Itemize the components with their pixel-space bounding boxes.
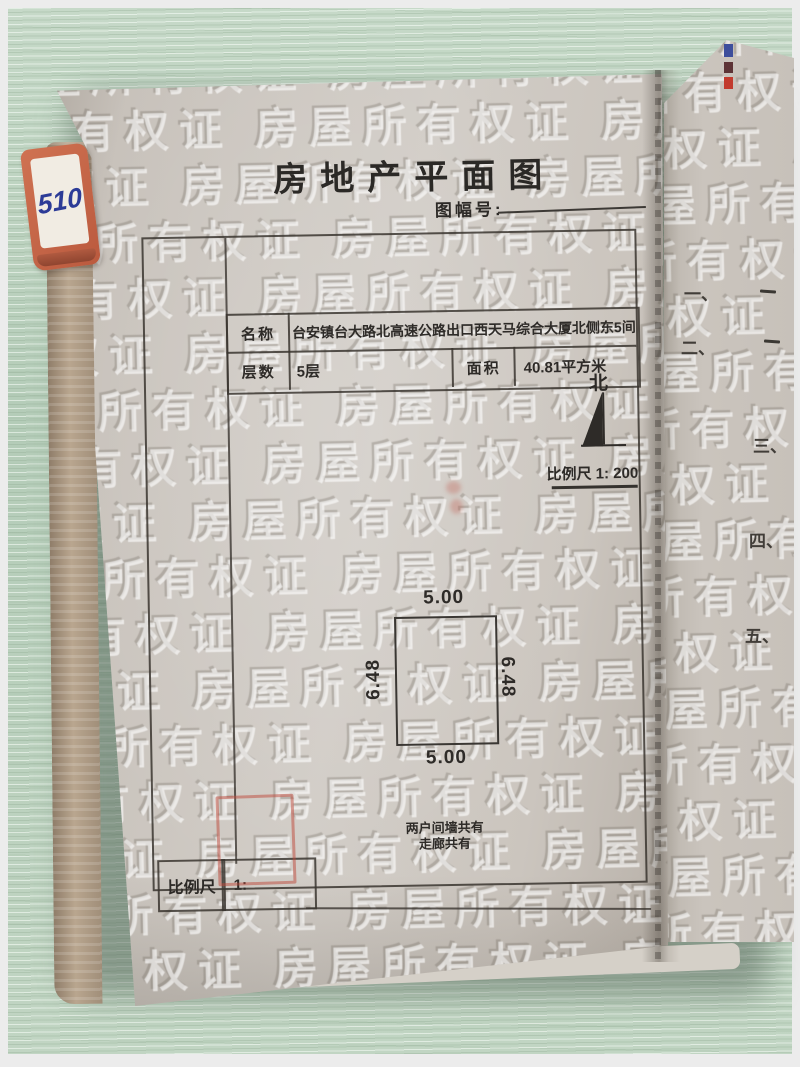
dimension-right: 6.48 [496, 647, 519, 707]
index-tab-fold [37, 248, 97, 267]
red-stamp-outline [215, 794, 296, 887]
scale-note: 比例尺 1: 200 [546, 462, 646, 485]
dimension-left: 6.48 [363, 649, 386, 709]
photo-of-document: 房屋所有权证 房屋所有权证 房屋所有权证 房屋所有权证 房屋所有权证 房屋所有权… [0, 0, 800, 1067]
dimension-bottom: 5.00 [416, 747, 476, 770]
floor-plan-outline [394, 615, 499, 746]
page-content: 房地产平面图 图幅号: 名称 台安镇台大路北高速公路出口西天马综合大厦北侧东5间… [0, 0, 800, 1067]
table-area-value: 40.81平方米 [523, 347, 636, 385]
note-line: 走廊共有 [380, 835, 510, 853]
index-tab-number: 510 [36, 181, 83, 221]
red-ink-smudge [450, 499, 463, 514]
table-floors-label: 层数 [228, 353, 289, 390]
page-title: 房地产平面图 [233, 146, 596, 201]
sheet-number-blank-line [498, 206, 646, 214]
red-ink-smudge [446, 481, 461, 494]
table-name-label: 名称 [228, 315, 289, 352]
table-area-label: 面积 [453, 349, 514, 386]
index-tab-sticker: 510 [30, 153, 90, 248]
table-name-value: 台安镇台大路北高速公路出口西天马综合大厦北侧东5间 [292, 309, 636, 351]
north-arrow-icon [581, 392, 603, 446]
bottom-scale-label-cell: 比例尺 [157, 859, 226, 912]
sheet-number-label: 图幅号: [435, 195, 504, 221]
table-floors-value: 5层 [296, 350, 447, 389]
shared-ownership-notes: 两户间墙共有 走廊共有 [380, 819, 511, 853]
dimension-top: 5.00 [413, 587, 473, 610]
form-border-bottom-second-line [306, 907, 651, 910]
